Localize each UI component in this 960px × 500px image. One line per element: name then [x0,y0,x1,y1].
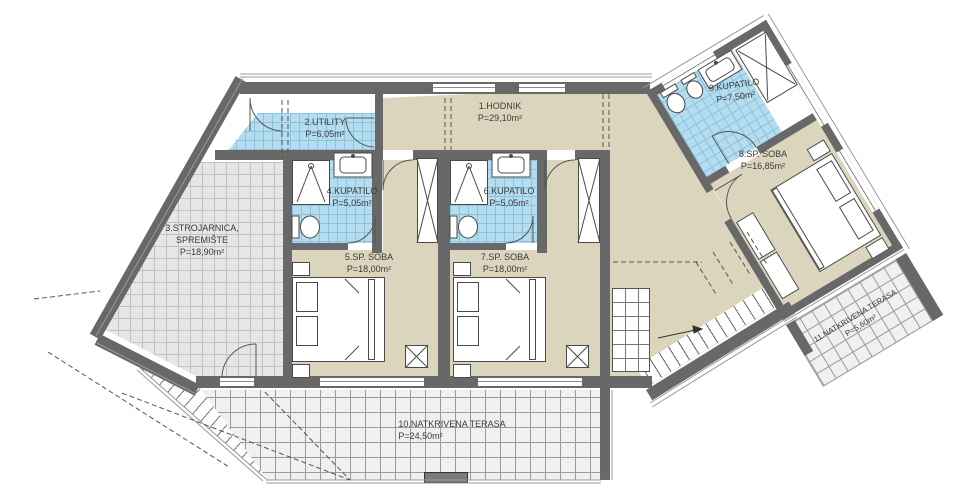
shower [292,160,330,205]
wardrobe [417,158,438,243]
room-area: P=24,50m² [398,430,505,442]
window [519,84,565,92]
ac-unit [566,345,589,368]
room-label-soba5: 5.SP. SOBA P=18,00m² [345,251,393,275]
hall-shelf-unit [612,288,650,372]
bed-footboard [368,279,375,360]
nightstand [292,262,310,276]
room-area: P=16,85m² [739,160,787,172]
ac-unit [405,345,428,368]
wall-segment [438,150,450,376]
room-name: 10.NATKRIVENA TERASA [398,418,505,430]
room-name: 7.SP. SOBA [481,251,529,263]
window [478,378,582,386]
floor-plan: 11.NATKRIVENA TERASA P=5,60m² [0,0,960,500]
window [433,84,495,92]
room-area: P=29,10m² [478,112,522,124]
room-area: P=5,05m² [484,197,535,209]
window [320,378,424,386]
nightstand [292,364,310,378]
room-label-utility: 2.UTILITY P=6,05m² [304,116,345,140]
room-name: 6.KUPATILO [484,185,535,197]
wall-segment [292,243,348,250]
room-name2: SPREMIŠTE [165,234,239,246]
nightstand [453,364,471,378]
pillow [296,316,318,346]
wall-segment [215,150,383,160]
window [220,378,254,386]
nightstand [453,262,471,276]
wall-segment [537,150,547,253]
wall-segment [600,150,610,480]
bed-footboard [529,279,536,360]
wall-segment [375,94,383,156]
pillow [457,316,479,346]
room-label-kupatilo4: 4.KUPATILO P=5,05m² [327,185,378,209]
room-name: 8.SP. SOBA [739,148,787,160]
room-name: 1.HODNIK [478,100,522,112]
wall-segment [196,376,652,388]
room-area: P=18,00m² [345,263,393,275]
room-label-kupatilo6: 6.KUPATILO P=5,05m² [484,185,535,209]
room-name: 5.SP. SOBA [345,251,393,263]
room-label-terasa10: 10.NATKRIVENA TERASA P=24,50m² [398,418,505,442]
room-label-strojarnica: 3.STROJARNICA, SPREMIŠTE P=18,90m² [165,222,239,258]
room-name: 4.KUPATILO [327,185,378,197]
wall-segment [450,243,506,250]
room-label-hodnik: 1.HODNIK P=29,10m² [478,100,522,124]
room-area: P=18,00m² [481,263,529,275]
wardrobe [578,158,600,243]
pillow [296,282,318,312]
shower [450,160,488,205]
room-area: P=6,05m² [304,128,345,140]
wall-segment [283,150,292,388]
terrace-step [424,472,468,483]
room-label-soba7: 7.SP. SOBA P=18,00m² [481,251,529,275]
room-name: 2.UTILITY [304,116,345,128]
room-area: P=18,90m² [165,246,239,258]
room-label-soba8: 8.SP. SOBA P=16,85m² [739,148,787,172]
room-area: P=5,05m² [327,197,378,209]
floor-utility [227,113,375,152]
room-name: 3.STROJARNICA, [165,222,239,234]
pillow [457,282,479,312]
